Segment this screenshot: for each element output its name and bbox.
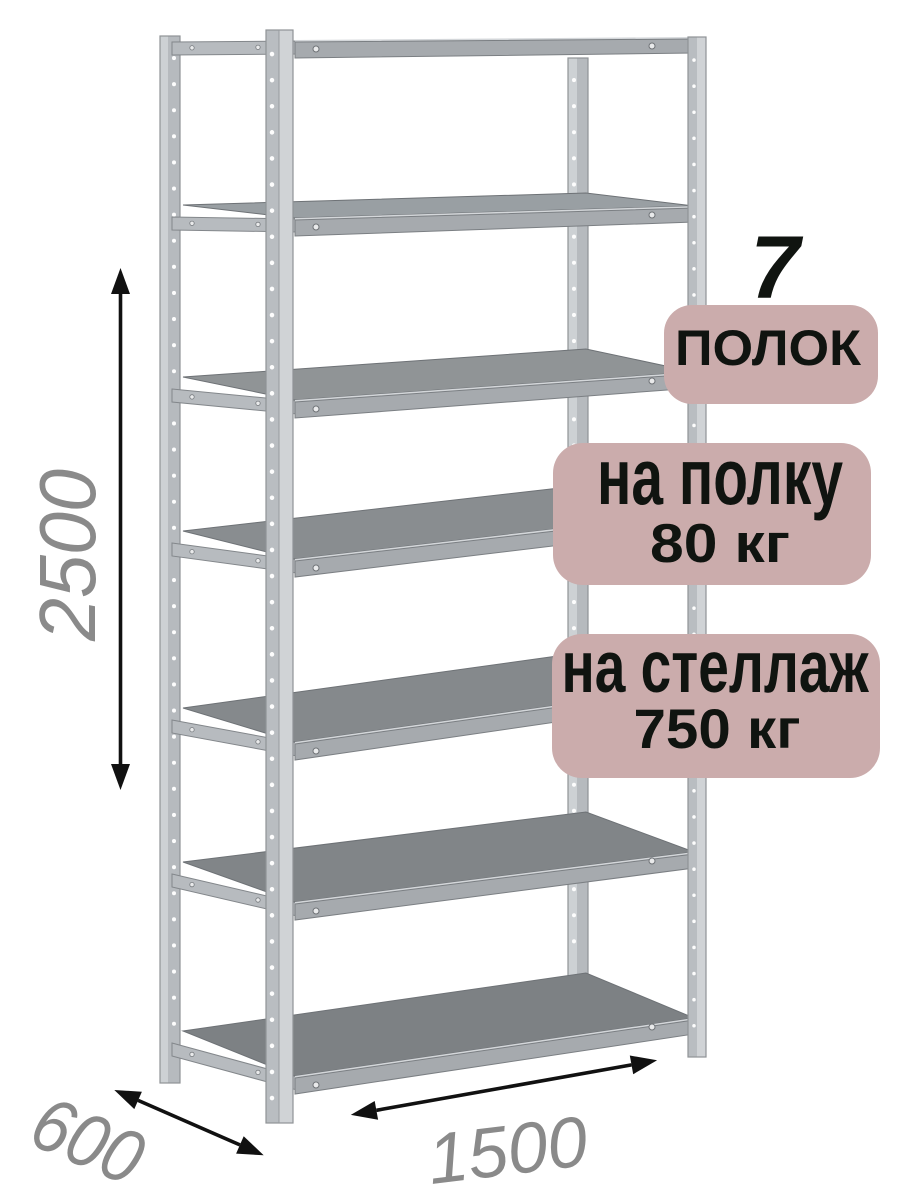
svg-text:2500: 2500 xyxy=(23,469,112,642)
svg-text:7: 7 xyxy=(750,217,803,317)
svg-text:750 кг: 750 кг xyxy=(634,697,801,760)
svg-text:на стеллаж: на стеллаж xyxy=(562,627,870,708)
svg-text:80 кг: 80 кг xyxy=(650,512,790,574)
svg-text:ПОЛОК: ПОЛОК xyxy=(675,320,862,376)
svg-text:1500: 1500 xyxy=(423,1102,591,1200)
svg-text:на полку: на полку xyxy=(597,432,843,521)
